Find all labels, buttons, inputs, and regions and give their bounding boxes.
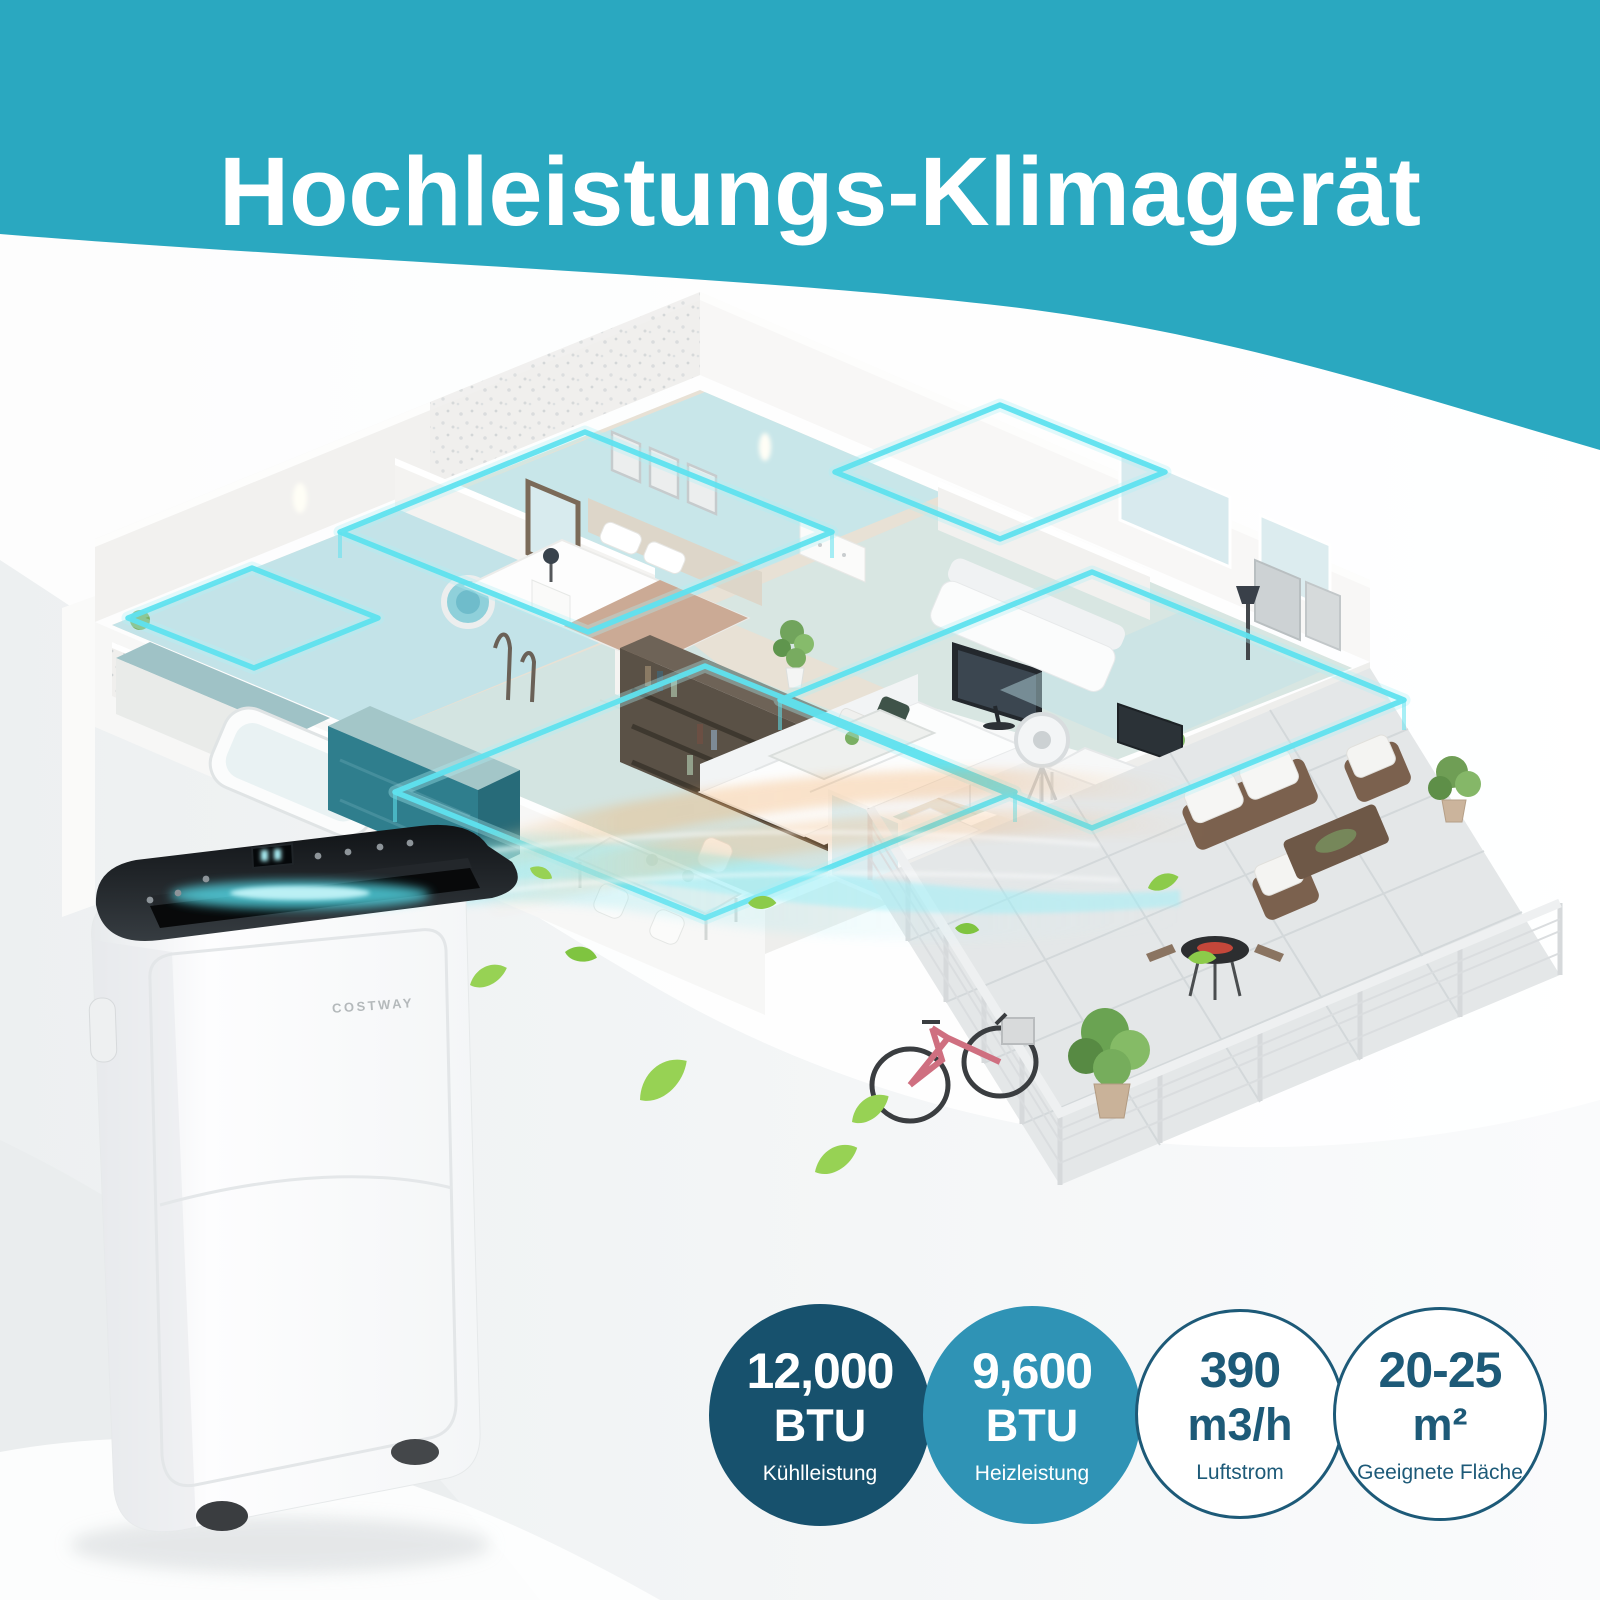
left-wing-wall — [62, 596, 95, 917]
ac-display — [252, 844, 293, 868]
badge-suitable-area: 20-25 m² Geeignete Fläche — [1333, 1307, 1547, 1521]
badge-label: Heizleistung — [975, 1463, 1089, 1484]
badge-cooling-capacity: 12,000 BTU Kühlleistung — [709, 1304, 931, 1526]
badge-heating-capacity: 9,600 BTU Heizleistung — [923, 1306, 1141, 1524]
badge-label: Geeignete Fläche — [1357, 1462, 1523, 1483]
badge-value: 390 — [1200, 1345, 1280, 1395]
badge-label: Kühlleistung — [763, 1463, 877, 1484]
badge-unit: BTU — [774, 1403, 866, 1448]
ac-shadow — [70, 1517, 490, 1573]
badge-unit: BTU — [986, 1403, 1078, 1448]
badge-value: 20-25 — [1379, 1345, 1502, 1395]
ac-handle — [89, 998, 117, 1063]
badge-label: Luftstrom — [1196, 1462, 1284, 1483]
badge-unit: m3/h — [1187, 1402, 1292, 1447]
wall-sconce-glow — [759, 433, 771, 461]
badge-unit: m² — [1413, 1402, 1468, 1447]
wall-sconce-glow — [293, 483, 307, 513]
badge-value: 9,600 — [972, 1346, 1092, 1396]
page-title: Hochleistungs-Klimagerät — [20, 141, 1600, 243]
badge-airflow: 390 m3/h Luftstrom — [1135, 1309, 1345, 1519]
badge-value: 12,000 — [747, 1346, 894, 1396]
ac-unit — [70, 825, 518, 1573]
